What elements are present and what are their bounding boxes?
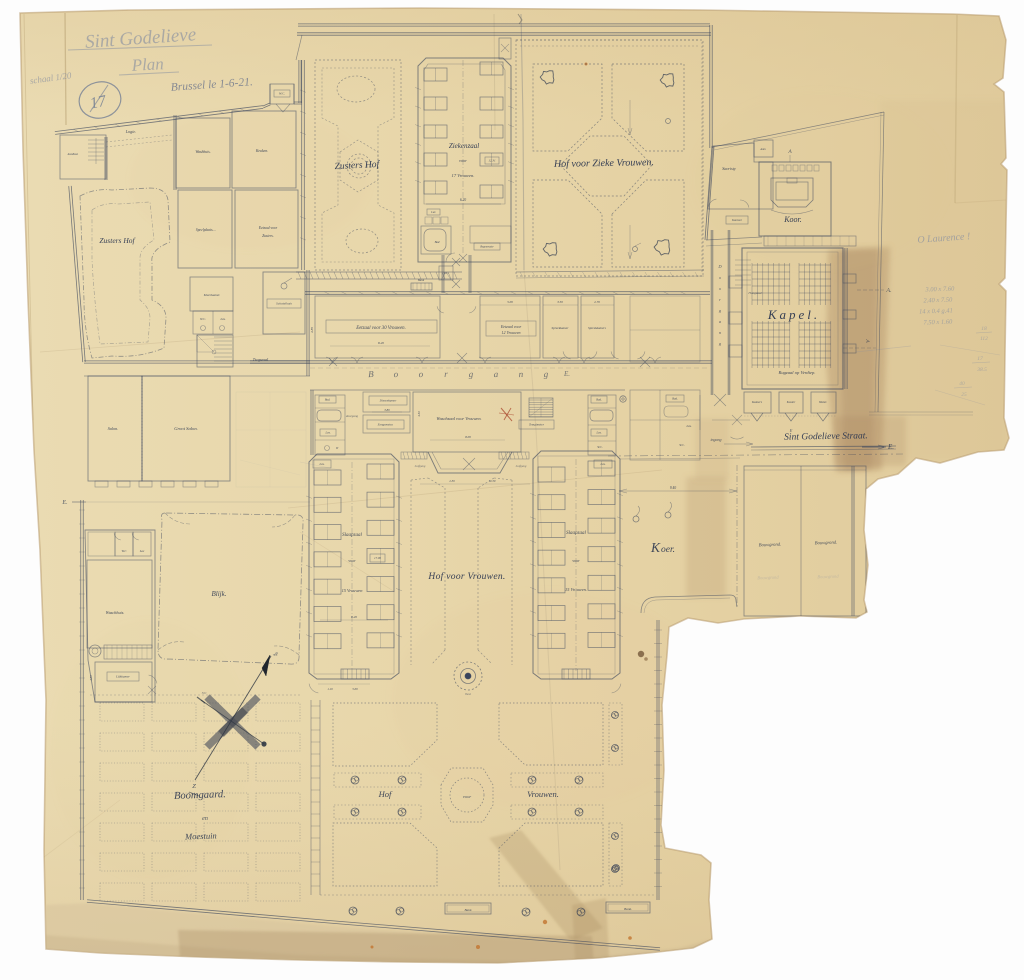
svg-text:W.C.: W.C. xyxy=(200,317,206,321)
svg-text:8.20: 8.20 xyxy=(378,341,384,345)
svg-text:oer.: oer. xyxy=(661,545,675,555)
svg-text:Vrouwen.: Vrouwen. xyxy=(527,789,559,799)
svg-text:Water.: Water. xyxy=(819,400,827,404)
svg-text:17: 17 xyxy=(977,356,983,362)
svg-text:14 x 0.4 g.41: 14 x 0.4 g.41 xyxy=(919,307,953,315)
svg-text:Koster: Koster xyxy=(786,400,796,404)
svg-text:voor: voor xyxy=(572,558,580,563)
svg-text:E.: E. xyxy=(887,443,894,451)
svg-text:Eetzaal voor 30 Vrouwen.: Eetzaal voor 30 Vrouwen. xyxy=(355,326,406,331)
svg-text:5.00: 5.00 xyxy=(352,687,358,691)
svg-text:Lav: Lav xyxy=(139,549,145,553)
svg-text:Lav.: Lav. xyxy=(318,462,324,466)
svg-text:Regenwater: Regenwater xyxy=(479,245,494,248)
svg-text:Eetzaal voor: Eetzaal voor xyxy=(258,226,278,230)
svg-text:5.00: 5.00 xyxy=(507,300,513,304)
svg-text:NO: NO xyxy=(201,691,207,695)
svg-text:Kapel.: Kapel. xyxy=(767,307,820,322)
svg-text:Waschzaal voor Vrouwen.: Waschzaal voor Vrouwen. xyxy=(436,416,481,421)
svg-text:Temgimeter: Temgimeter xyxy=(529,423,545,427)
svg-text:Hof: Hof xyxy=(378,789,393,799)
svg-text:n: n xyxy=(518,369,523,379)
svg-text:40: 40 xyxy=(959,380,965,387)
svg-text:Lav.: Lav. xyxy=(595,431,601,435)
svg-text:A: A xyxy=(787,149,792,155)
svg-text:4.30: 4.30 xyxy=(417,411,421,417)
svg-text:Koor.: Koor. xyxy=(783,215,802,224)
svg-text:2.70: 2.70 xyxy=(594,300,600,304)
svg-text:W.C.: W.C. xyxy=(597,446,603,449)
svg-text:Ziekenzaal: Ziekenzaal xyxy=(449,142,479,150)
svg-text:Lav.: Lav. xyxy=(324,431,330,435)
svg-text:Dissenkamer: Dissenkamer xyxy=(379,399,397,403)
svg-text:Bank: Bank xyxy=(465,908,472,912)
svg-text:Spreekkamer: Spreekkamer xyxy=(551,326,569,330)
svg-text:E.: E. xyxy=(563,370,570,378)
svg-text:9.40: 9.40 xyxy=(670,486,676,490)
svg-text:112: 112 xyxy=(980,336,988,342)
svg-text:E.: E. xyxy=(61,500,67,506)
svg-text:W.C.: W.C. xyxy=(679,444,685,447)
svg-text:38.5: 38.5 xyxy=(976,367,987,373)
svg-text:8.00: 8.00 xyxy=(465,435,471,439)
svg-text:A.: A. xyxy=(885,288,891,294)
svg-text:Spreekkamers: Spreekkamers xyxy=(588,326,607,330)
svg-text:12.31: 12.31 xyxy=(488,159,496,163)
svg-text:Hof voor Vrouwen.: Hof voor Vrouwen. xyxy=(427,571,505,582)
svg-text:Washhuis.: Washhuis. xyxy=(195,150,210,154)
svg-text:W.C.: W.C. xyxy=(279,92,285,96)
svg-text:Speelplaats....: Speelplaats.... xyxy=(196,228,216,232)
svg-text:Hoogzaal: Hoogzaal xyxy=(747,291,761,295)
svg-text:B: B xyxy=(368,369,374,379)
svg-text:E: E xyxy=(789,428,793,433)
svg-text:doorgang: doorgang xyxy=(346,414,359,418)
svg-text:Bank: Bank xyxy=(418,278,425,282)
svg-text:a: a xyxy=(493,369,498,379)
svg-text:Plan: Plan xyxy=(130,54,164,75)
svg-text:Bad.: Bad. xyxy=(325,398,331,402)
svg-text:voor: voor xyxy=(463,794,471,799)
svg-text:Bouwgrond: Bouwgrond xyxy=(757,575,779,581)
svg-text:Bad.: Bad. xyxy=(596,398,602,402)
svg-text:3.50: 3.50 xyxy=(557,300,563,304)
svg-text:6.20: 6.20 xyxy=(460,198,466,202)
svg-text:Lav: Lav xyxy=(430,210,436,214)
svg-text:Bank.: Bank. xyxy=(624,907,632,911)
svg-text:Bouwgrond: Bouwgrond xyxy=(817,574,839,580)
svg-text:o: o xyxy=(418,369,423,379)
svg-text:voor: voor xyxy=(348,558,356,563)
svg-text:17 Vrouwen.: 17 Vrouwen. xyxy=(452,173,475,178)
svg-text:en: en xyxy=(202,816,208,822)
svg-text:Lijkkamer: Lijkkamer xyxy=(115,675,130,679)
svg-text:Eetzaal voor: Eetzaal voor xyxy=(500,324,522,329)
svg-text:18: 18 xyxy=(981,326,987,332)
svg-text:Bad: Bad xyxy=(435,240,440,244)
svg-text:g: g xyxy=(543,369,548,379)
svg-text:1.10: 1.10 xyxy=(327,687,333,691)
svg-text:Slaapzaal: Slaapzaal xyxy=(342,533,362,538)
svg-text:12 Vrouwen: 12 Vrouwen xyxy=(502,330,521,335)
svg-text:A: A xyxy=(864,338,870,343)
svg-text:3.80: 3.80 xyxy=(384,408,390,412)
svg-text:Hof voor Zieke Vrouwen.: Hof voor Zieke Vrouwen. xyxy=(553,157,654,170)
svg-text:Bouwgrond.: Bouwgrond. xyxy=(759,542,782,548)
svg-text:Eengemeter.: Eengemeter. xyxy=(377,423,394,427)
svg-text:Lav.: Lav. xyxy=(599,462,605,466)
svg-text:ingang: ingang xyxy=(710,437,721,442)
svg-text:Sint Godelieve Straat.: Sint Godelieve Straat. xyxy=(784,431,868,442)
svg-text:Luifgang: Luifgang xyxy=(414,464,426,468)
svg-text:o: o xyxy=(393,369,398,379)
svg-text:3.00 x 7.60: 3.00 x 7.60 xyxy=(924,285,955,293)
svg-text:Kleerkamer.: Kleerkamer. xyxy=(203,293,221,297)
svg-text:17.00: 17.00 xyxy=(374,556,381,560)
svg-text:2.40 x 7.50: 2.40 x 7.50 xyxy=(923,296,953,304)
svg-text:Salon.: Salon. xyxy=(108,426,119,431)
svg-text:Lav.: Lav. xyxy=(219,317,225,321)
svg-text:Lav.: Lav. xyxy=(685,424,691,428)
svg-text:Bad.: Bad. xyxy=(672,397,678,401)
svg-text:g: g xyxy=(468,369,473,379)
svg-text:Luifgang: Luifgang xyxy=(515,464,527,468)
svg-text:Logie.: Logie. xyxy=(125,129,137,134)
svg-text:r: r xyxy=(719,297,721,302)
svg-text:Waschhuis.: Waschhuis. xyxy=(106,610,125,615)
svg-text:Aum: Aum xyxy=(759,148,765,151)
svg-text:8.20: 8.20 xyxy=(351,615,357,619)
svg-text:Groot Salon.: Groot Salon. xyxy=(174,426,198,431)
svg-text:Rugzaal op Verdiep.: Rugzaal op Verdiep. xyxy=(778,370,816,375)
svg-text:4.80: 4.80 xyxy=(89,675,93,681)
svg-text:Moestuin: Moestuin xyxy=(184,830,217,841)
svg-text:4.85: 4.85 xyxy=(310,327,314,333)
svg-text:K: K xyxy=(650,540,661,555)
svg-text:Zusters.: Zusters. xyxy=(262,234,274,238)
svg-text:Z: Z xyxy=(192,783,196,790)
svg-text:Bank: Bank xyxy=(465,693,472,696)
svg-text:Sacristy: Sacristy xyxy=(722,166,736,171)
svg-text:7.50 x 1.60: 7.50 x 1.60 xyxy=(923,318,953,326)
svg-text:Boomgaard.: Boomgaard. xyxy=(174,789,226,802)
svg-text:Blijk.: Blijk. xyxy=(212,590,227,598)
svg-text:2.30: 2.30 xyxy=(449,479,455,483)
svg-text:Keuken.: Keuken. xyxy=(255,149,268,153)
svg-text:Bouwgrond.: Bouwgrond. xyxy=(815,540,838,546)
svg-text:Zusters Hof: Zusters Hof xyxy=(99,236,135,245)
svg-text:25: 25 xyxy=(961,392,967,398)
svg-text:15 Vrouwen.: 15 Vrouwen. xyxy=(565,587,587,592)
svg-text:Slaapzaal: Slaapzaal xyxy=(566,531,586,536)
svg-text:voor: voor xyxy=(459,158,467,163)
svg-text:15 Vrouwen: 15 Vrouwen xyxy=(342,588,364,593)
svg-text:Kamers: Kamers xyxy=(751,400,763,404)
svg-text:Kantoor: Kantoor xyxy=(731,218,743,222)
svg-text:koolkot.: koolkot. xyxy=(68,152,79,156)
svg-text:Schotelhuis: Schotelhuis xyxy=(276,302,292,306)
